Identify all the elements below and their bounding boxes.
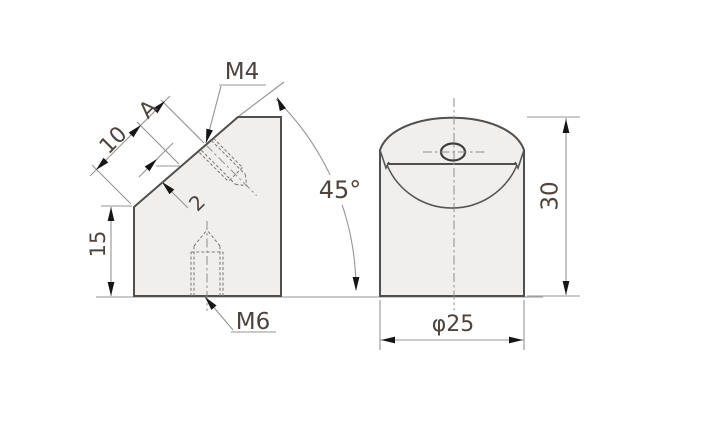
m6-label: M6 (236, 309, 270, 335)
m6-leader: M6 (202, 295, 276, 335)
dim-30-label: 30 (538, 181, 564, 210)
front-view: 2 10 A M4 45° (86, 59, 365, 335)
dim-30: 30 (527, 117, 580, 296)
dim-10-label: 10 (95, 122, 132, 159)
dim-dia-25-label: φ25 (432, 312, 475, 337)
ext-line-corner (92, 165, 131, 204)
dim-15-label: 15 (86, 231, 110, 258)
dim-A-label: A (134, 95, 162, 123)
ext-line-hole (161, 100, 202, 141)
dim-15: 15 (86, 206, 132, 296)
technical-drawing-canvas: 2 10 A M4 45° (0, 0, 714, 438)
dim-45-label: 45° (319, 176, 362, 204)
dim-dia-25: φ25 (380, 300, 524, 350)
side-view: 30 φ25 (380, 98, 580, 350)
chamfer-extension-line (239, 82, 284, 116)
engineering-drawing: 2 10 A M4 45° (0, 0, 714, 438)
m4-label: M4 (225, 59, 259, 85)
